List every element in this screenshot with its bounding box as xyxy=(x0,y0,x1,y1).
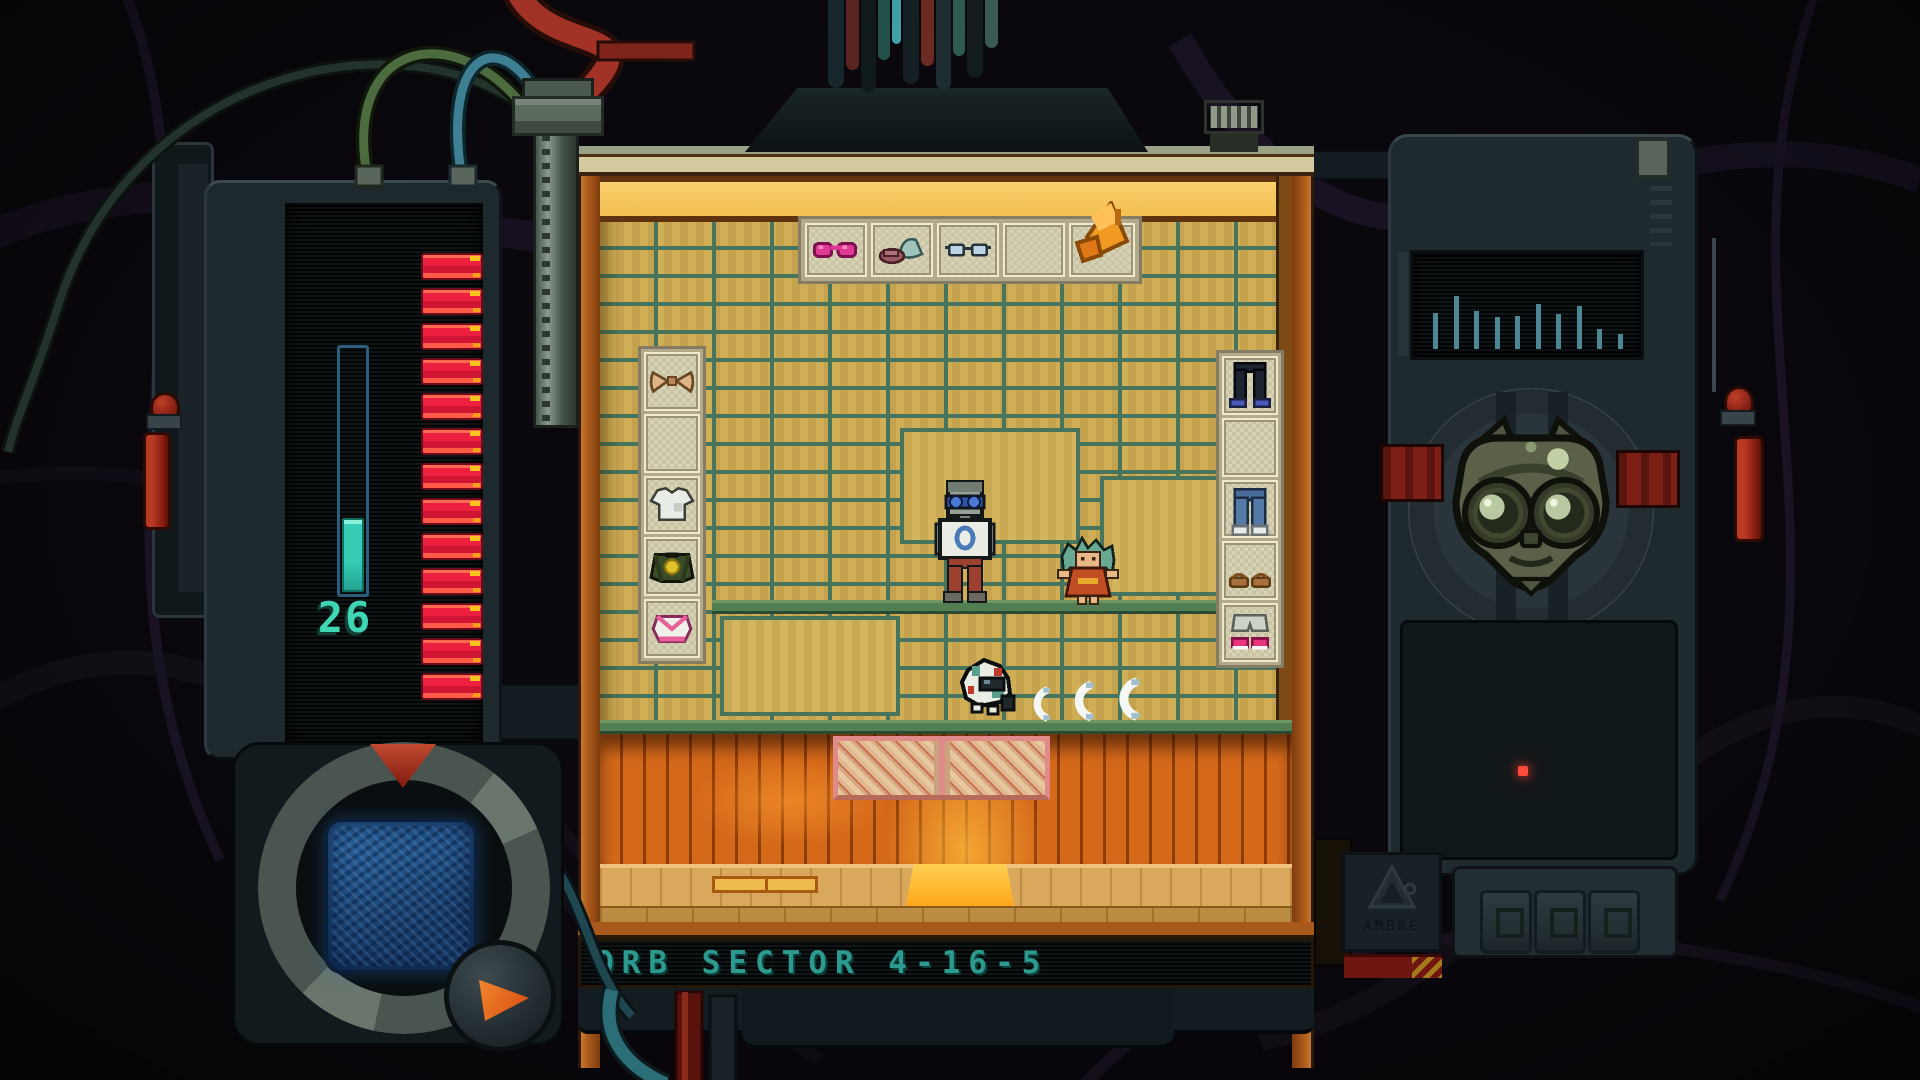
display-hood xyxy=(745,88,1148,152)
key-glyph xyxy=(1550,908,1578,938)
dial-knob[interactable] xyxy=(444,940,556,1052)
keypad-key-1[interactable] xyxy=(1480,890,1532,954)
cable-bundle xyxy=(828,0,1006,96)
keypad-key-2[interactable] xyxy=(1534,890,1586,954)
handheld-device-ui: 26 xyxy=(0,0,1920,1080)
piston-collar xyxy=(512,96,604,136)
key-glyph xyxy=(1604,908,1632,938)
vent-connector-box xyxy=(1204,100,1264,134)
key-glyph xyxy=(1496,908,1524,938)
keypad-key-3[interactable] xyxy=(1588,890,1640,954)
vent-connector-base xyxy=(1210,132,1258,152)
play-triangle-icon xyxy=(479,973,529,1021)
